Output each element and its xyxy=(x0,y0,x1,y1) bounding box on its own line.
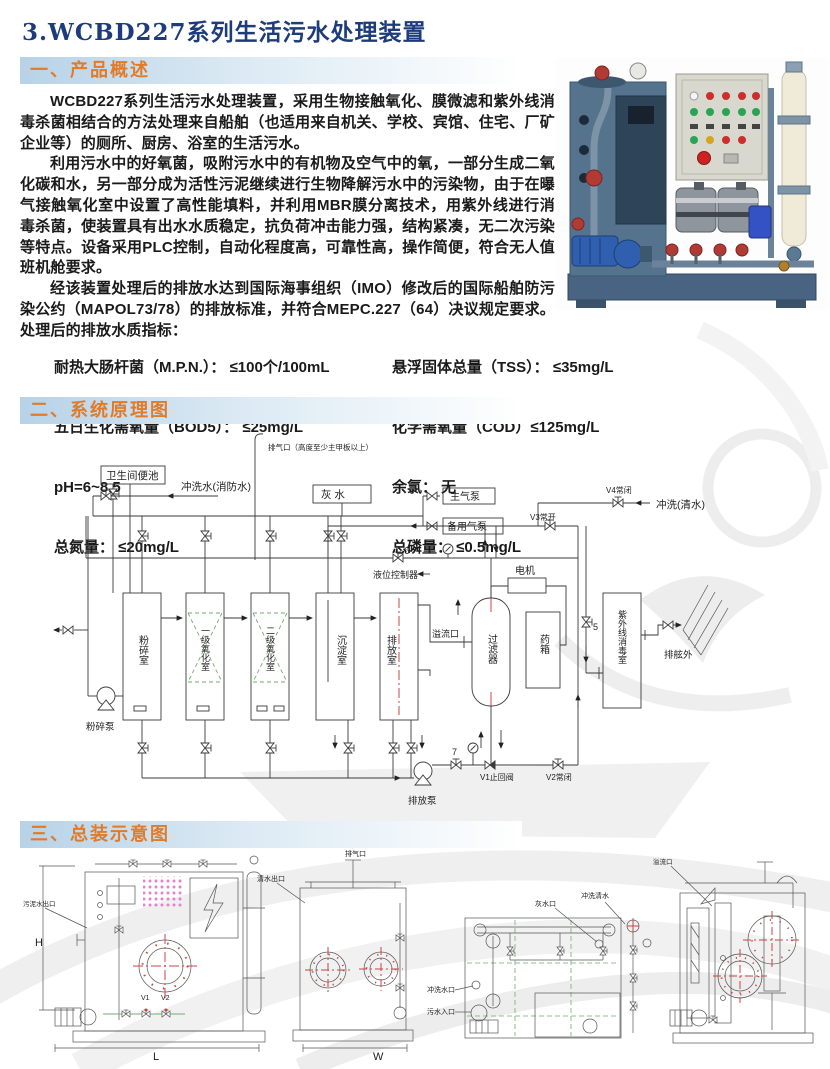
svg-text:一级氧化室: 一级氧化室 xyxy=(200,626,210,671)
num5: 5 xyxy=(593,622,598,632)
side-view-drawing: 排气口 清水出口 W xyxy=(257,849,413,1063)
overboard-hatching xyxy=(683,585,728,655)
overboard-label: 排舷外 xyxy=(664,649,693,661)
svg-text:二级氧化室: 二级氧化室 xyxy=(265,626,275,671)
tank-oxidation-2: 二级氧化室 xyxy=(251,593,289,720)
overview-para-1: WCBD227系列生活污水处理装置，采用生物接触氧化、膜微滤和紫外线消毒杀菌相结… xyxy=(20,92,555,154)
flush-clean-lines: V4常闭 冲洗(清水) V3常开 xyxy=(328,486,705,765)
toilet-box: 卫生间便池 xyxy=(101,466,165,593)
filter-vessel: 过滤器 xyxy=(458,558,510,765)
svg-text:药箱: 药箱 xyxy=(538,634,550,655)
air-pump-boxes: 主气泵 备用气泵 xyxy=(423,488,503,534)
discharge-pump-line: 排放泵 7 V1止回阀 V2常闭 xyxy=(408,743,578,807)
spec-mpn: 耐热大肠杆菌（M.P.N.）： ≤100个/100mL xyxy=(54,358,392,378)
rear-view-drawing: 溢流口 xyxy=(653,857,813,1043)
spec-tss: 悬浮固体总量（TSS）： ≤35mg/L xyxy=(392,358,772,378)
section-heading-schematic: 二、系统原理图 xyxy=(20,397,522,424)
front-view-drawing: H L 污泥水出口 V1 V2 xyxy=(23,856,265,1063)
sewage-inlet-label: 污水入口 xyxy=(427,1007,455,1016)
product-photo xyxy=(556,58,828,310)
clean-outlet-label: 清水出口 xyxy=(257,874,285,883)
vent-port-label: 排气口 xyxy=(345,849,366,858)
overview-para-2: 利用污水中的好氧菌，吸附污水中的有机物及空气中的氧，一部分生成二氧化碳和水，另一… xyxy=(20,154,555,279)
filler-dots xyxy=(143,876,183,908)
tank-settling: 沉淀室 xyxy=(316,593,354,720)
flush-port-label: 冲洗水口 xyxy=(427,985,455,994)
svg-text:备用气泵: 备用气泵 xyxy=(447,520,487,533)
svg-text:灰 水: 灰 水 xyxy=(321,488,345,501)
system-schematic-diagram: 排气口（高度至少主甲板以上） 卫生间便池 冲洗水(消防水) 灰 水 xyxy=(18,430,813,817)
flush-fire-label: 冲洗水(消防水) xyxy=(181,480,251,493)
v2-label: V2常闭 xyxy=(546,773,572,782)
svg-text:电机: 电机 xyxy=(515,564,535,577)
tank-crush: 粉碎室 xyxy=(123,593,161,720)
v1-label: V1止回阀 xyxy=(480,772,514,782)
overflow-label: 溢流口 xyxy=(432,628,459,639)
top-view-drawing: 灰水口 冲洗清水 冲洗水口 污水入口 xyxy=(427,891,651,1038)
num6: 6 xyxy=(404,546,410,557)
level-controller: 6 液位控制器 xyxy=(373,544,453,580)
tank-discharge: 排放室 xyxy=(380,593,418,720)
svg-text:粉碎室: 粉碎室 xyxy=(137,634,149,665)
dim-l: L xyxy=(153,1051,159,1063)
v3-label: V3常开 xyxy=(530,513,556,522)
svg-text:沉淀室: 沉淀室 xyxy=(335,634,347,665)
discharge-pump-label: 排放泵 xyxy=(408,795,437,807)
crush-pump-label: 粉碎泵 xyxy=(86,721,115,733)
chemical-tank: 药箱 xyxy=(526,612,560,688)
svg-text:卫生间便池: 卫生间便池 xyxy=(106,469,159,482)
tank-drains xyxy=(138,720,422,778)
svg-text:主气泵: 主气泵 xyxy=(450,490,480,503)
assembly-drawings: H L 污泥水出口 V1 V2 xyxy=(15,848,815,1069)
section-heading-assembly: 三、总装示意图 xyxy=(20,821,522,848)
section-heading-overview: 一、产品概述 xyxy=(20,57,522,84)
gray-port-label: 灰水口 xyxy=(535,899,556,908)
num7: 7 xyxy=(452,747,457,757)
air-manifolds xyxy=(86,516,578,593)
overview-paragraphs: WCBD227系列生活污水处理装置，采用生物接触氧化、膜微滤和紫外线消毒杀菌相结… xyxy=(20,92,555,342)
overflow-port-label: 溢流口 xyxy=(653,857,673,866)
page-title: 3.WCBD227系列生活污水处理装置 xyxy=(22,13,802,47)
tank-oxidation-1: 一级氧化室 xyxy=(186,593,224,720)
flush-clean-label: 冲洗清水 xyxy=(581,891,609,900)
gray-water-box: 灰 水 xyxy=(313,485,371,516)
level-controller-label: 液位控制器 xyxy=(373,569,418,580)
dim-w: W xyxy=(373,1051,384,1063)
svg-text:紫外线消毒室: 紫外线消毒室 xyxy=(617,610,627,664)
sludge-outlet-label: 污泥水出口 xyxy=(23,899,56,908)
v2-port-label: V2 xyxy=(161,995,170,1002)
motor-box: 电机 xyxy=(491,564,566,645)
vent-label: 排气口（高度至少主甲板以上） xyxy=(268,442,373,452)
svg-text:排放室: 排放室 xyxy=(385,634,397,665)
uv-chamber: 5 紫外线消毒室 排舷外 xyxy=(582,526,728,708)
v1-port-label: V1 xyxy=(141,995,150,1002)
lightning-icon xyxy=(204,884,223,932)
control-panel xyxy=(676,74,768,180)
dim-h: H xyxy=(35,937,43,949)
svg-text:过滤器: 过滤器 xyxy=(486,633,498,665)
flush-clean-label: 冲洗(清水) xyxy=(656,498,705,511)
v4-label: V4常闭 xyxy=(606,486,632,495)
